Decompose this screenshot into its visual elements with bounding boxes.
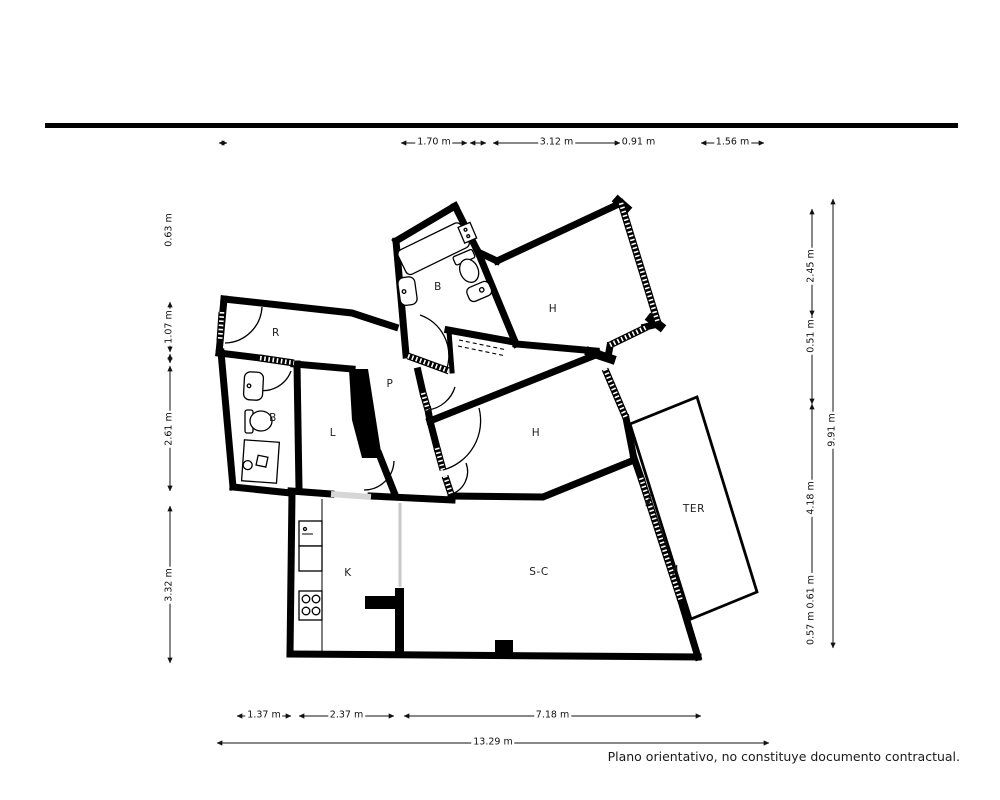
sink [397, 276, 418, 306]
stove [299, 591, 322, 620]
sink [243, 372, 263, 401]
kitchen-counter [299, 499, 322, 651]
floor-plan-drawing [0, 0, 1000, 800]
floorplan-page: BHRBPLHTERKS-C1.70 m3.12 m0.91 m1.56 m1.… [0, 0, 1000, 800]
walls [219, 201, 698, 657]
glass-partitions [331, 494, 400, 587]
shower-tray [242, 440, 280, 483]
toilet [245, 410, 272, 433]
bidet [465, 280, 493, 303]
disclaimer-text: Plano orientativo, no constituye documen… [608, 749, 960, 764]
